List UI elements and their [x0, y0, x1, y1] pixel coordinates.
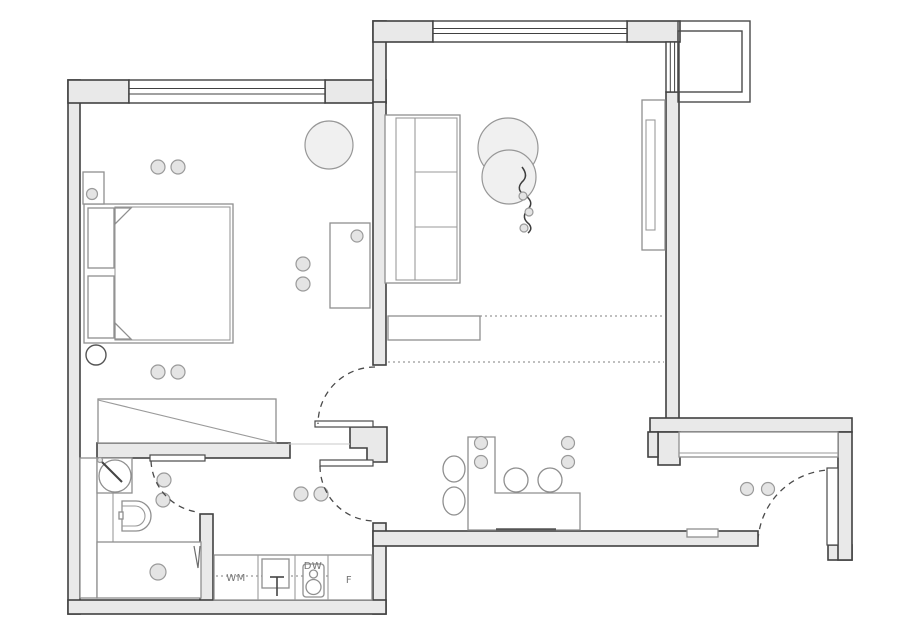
duct-strip — [80, 458, 97, 598]
dining-area — [443, 437, 580, 531]
living-side-window — [666, 42, 679, 92]
floor-plan-drawing: WM DW F — [0, 0, 900, 634]
ceiling-light-icon — [741, 483, 754, 496]
nightstand-lamp-icon — [87, 189, 98, 200]
ceiling-light-icon — [151, 365, 165, 379]
toilet-flush-button — [119, 512, 123, 519]
ceiling-light-icon — [294, 487, 308, 501]
burner-icon — [306, 580, 321, 595]
living-window — [433, 21, 627, 42]
vine-bud-icon — [519, 192, 527, 200]
pendant-light-icon — [562, 456, 575, 469]
wall-hall-top — [650, 418, 852, 432]
ceiling-light-icon — [296, 277, 310, 291]
ceiling-light-icon — [762, 483, 775, 496]
ceiling-light-icon — [171, 365, 185, 379]
kitchen-sink-icon — [262, 559, 289, 588]
shower-icon — [97, 542, 201, 598]
desk-lamp-icon — [351, 230, 363, 242]
window-icon — [666, 42, 679, 92]
vine-bud-icon — [520, 224, 528, 232]
wall-living-top-left-pier — [373, 21, 433, 42]
wall-bedroom-top-left-pier — [68, 80, 129, 103]
vine-bud-icon — [525, 208, 533, 216]
wall-bottom-left-exterior — [68, 600, 386, 614]
bedroom — [83, 121, 370, 443]
dishwasher-label: DW — [304, 561, 323, 572]
ceiling-light-icon — [151, 160, 165, 174]
wall-left-exterior — [68, 80, 80, 614]
wall-right-exterior — [666, 92, 679, 433]
kitchen-counter: WM DW F — [214, 555, 372, 600]
ceiling-light-icon — [314, 487, 328, 501]
shower-drain-icon — [150, 564, 166, 580]
door-swing-arc-icon — [758, 470, 828, 540]
hanging-chair-icon — [482, 150, 536, 204]
wall-bathroom-right — [200, 514, 213, 602]
window-icon — [433, 21, 627, 42]
pillow-icon — [88, 208, 114, 268]
entry-door — [758, 468, 838, 545]
door-swing-arc-icon — [318, 367, 375, 424]
wall-hall-step-piece — [350, 427, 387, 462]
wall-living-top-right-pier — [627, 21, 680, 42]
sideboard-icon — [388, 316, 480, 340]
ceiling-light-icon — [156, 493, 170, 507]
floor-plan-canvas: WM DW F — [0, 0, 900, 634]
pendant-light-icon — [475, 456, 488, 469]
bathroom — [80, 458, 201, 599]
wall-hall-right — [838, 432, 852, 560]
faucet-dot — [98, 458, 103, 463]
fridge-label: F — [346, 575, 352, 586]
chair-icon — [443, 456, 465, 482]
stool-icon — [86, 345, 106, 365]
pendant-light-icon — [475, 437, 488, 450]
ceiling-light-icon — [296, 257, 310, 271]
chair-icon — [443, 487, 465, 515]
desk-icon — [330, 223, 370, 308]
door-leaf — [150, 455, 205, 461]
wall-dining-hall-stub — [658, 432, 680, 465]
window-icon — [129, 80, 325, 103]
ceiling-light-icon — [157, 473, 171, 487]
door-leaf — [827, 468, 838, 545]
door-leaf — [315, 421, 373, 427]
door-leaf — [320, 460, 373, 466]
living-room — [385, 100, 665, 340]
bedroom-door — [315, 367, 375, 427]
balcony-icon — [678, 21, 750, 102]
balcony — [678, 21, 750, 102]
pillow-icon — [88, 276, 114, 338]
chair-icon — [538, 468, 562, 492]
washing-machine-label: WM — [226, 573, 246, 584]
pouf-icon — [305, 121, 353, 169]
doormat-icon — [687, 529, 718, 537]
wall-bedroom-living-divider — [373, 102, 386, 365]
chair-icon — [504, 468, 528, 492]
hall-door — [320, 460, 373, 521]
ceiling-light-icon — [171, 160, 185, 174]
pendant-light-icon — [562, 437, 575, 450]
wall-dining-hall-tab — [648, 432, 658, 457]
bedroom-window — [129, 80, 325, 103]
